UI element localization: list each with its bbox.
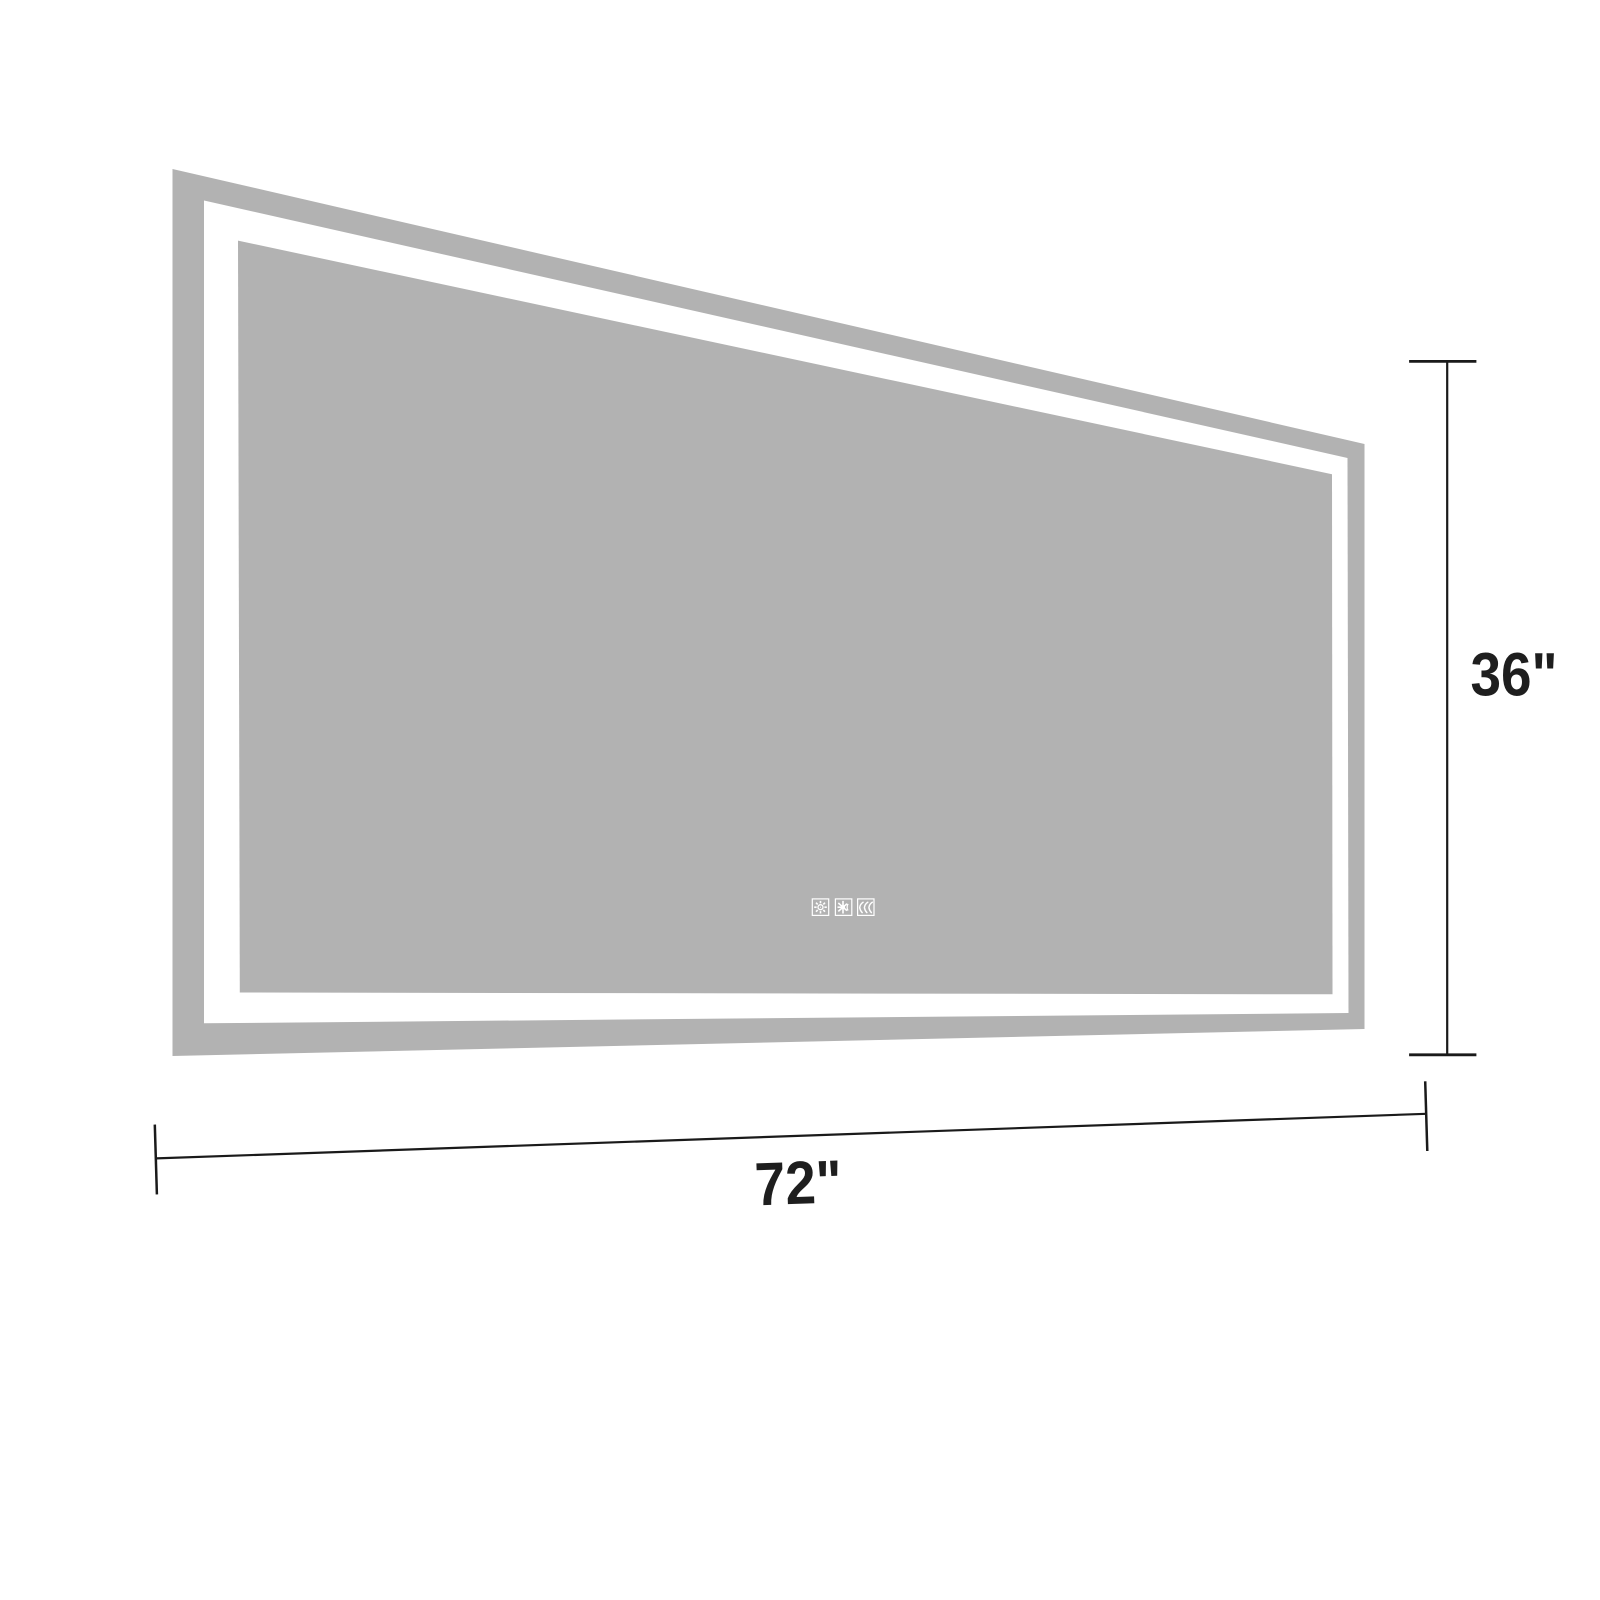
svg-text:72": 72"	[754, 1148, 843, 1219]
svg-text:36": 36"	[1470, 641, 1557, 709]
